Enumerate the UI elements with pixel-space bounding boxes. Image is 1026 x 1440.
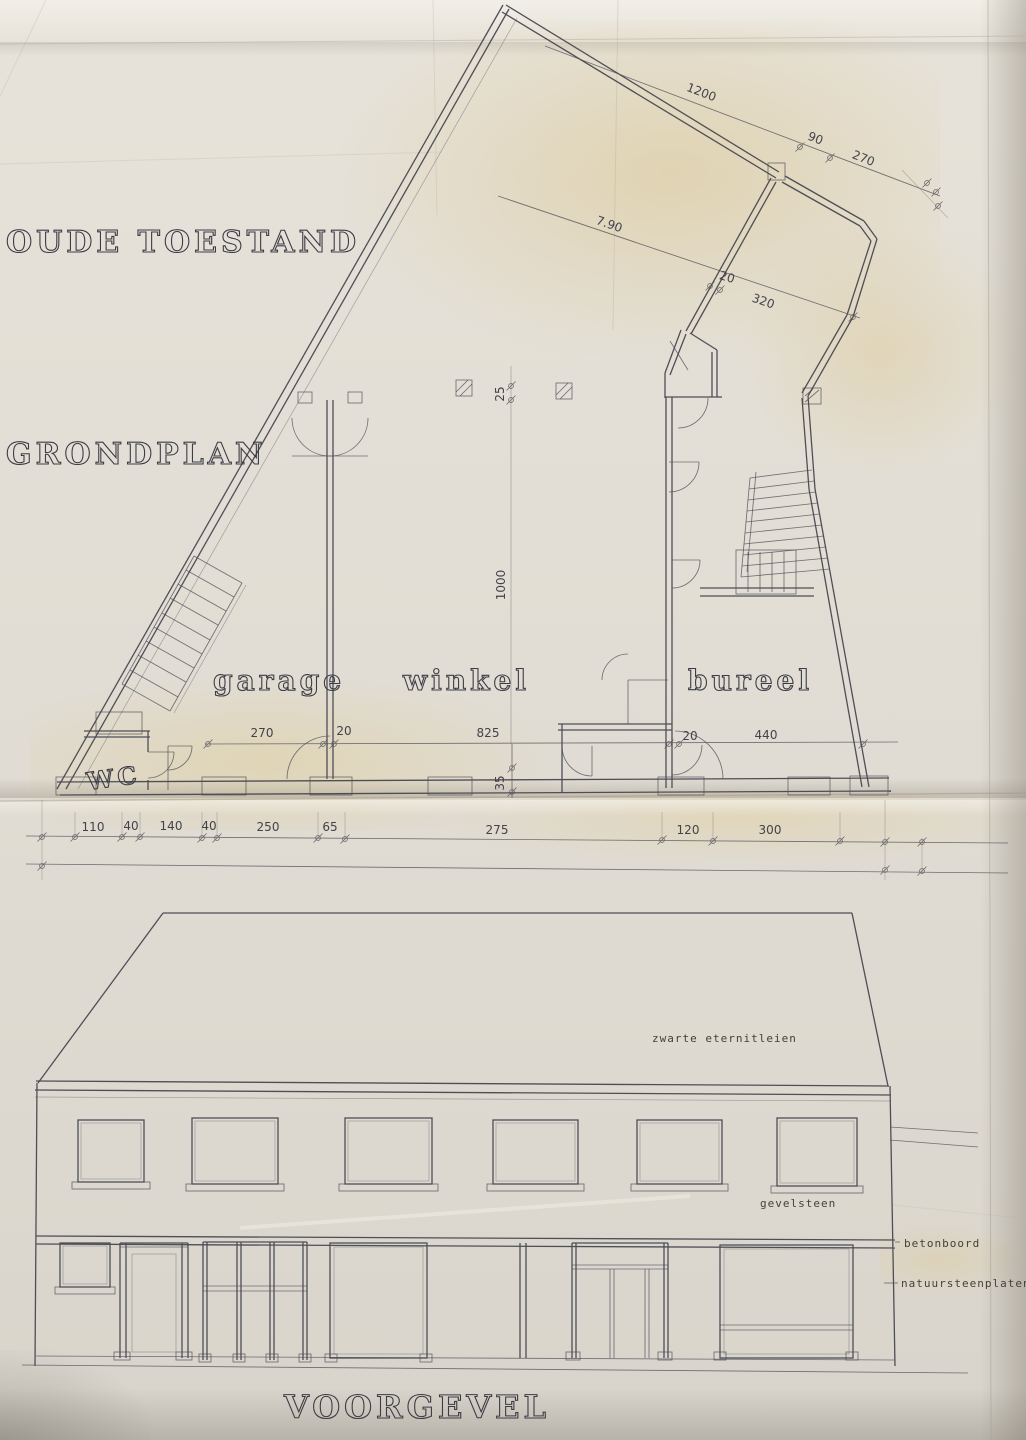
dim-bottom-40b: 40 bbox=[201, 819, 216, 833]
dim-20-int-b: 20 bbox=[682, 729, 697, 743]
room-label-bureel: bureel bbox=[688, 664, 813, 697]
dim-bottom-65: 65 bbox=[322, 820, 337, 834]
facade-anno-roof: zwarte eternitleien bbox=[652, 1032, 797, 1045]
facade-anno-wall: gevelsteen bbox=[760, 1197, 836, 1210]
dim-270-top: 270 bbox=[850, 148, 876, 170]
plan-winkel-partition bbox=[558, 654, 672, 792]
paper-creases bbox=[0, 0, 1026, 1440]
dim-bottom-110: 110 bbox=[82, 820, 105, 834]
facade-outline bbox=[22, 913, 978, 1373]
dim-320: 320 bbox=[750, 291, 776, 312]
plan-bureel-wall-and-bay bbox=[665, 330, 723, 788]
room-label-wc: WC bbox=[84, 760, 143, 796]
dim-bottom-300: 300 bbox=[759, 823, 782, 837]
facade-ground-floor bbox=[55, 1242, 858, 1362]
room-label-winkel: winkel bbox=[402, 664, 530, 697]
dim-bottom-250: 250 bbox=[257, 820, 280, 834]
title-oude-toestand: OUDE TOESTAND bbox=[6, 225, 360, 260]
room-label-garage: garage bbox=[213, 664, 345, 697]
blueprint-sheet: 1200 90 270 7.90 20 320 bbox=[0, 0, 1026, 1440]
title-voorgevel: VOORGEVEL bbox=[283, 1388, 550, 1426]
dim-bottom-275: 275 bbox=[486, 823, 509, 837]
dim-bottom-40a: 40 bbox=[123, 819, 138, 833]
title-grondplan: GRONDPLAN bbox=[6, 437, 266, 472]
dim-825: 825 bbox=[477, 726, 500, 740]
dim-20-int-a: 20 bbox=[336, 724, 351, 738]
dim-90: 90 bbox=[806, 129, 825, 148]
plan-bureel-stair bbox=[700, 470, 830, 596]
dim-35: 35 bbox=[493, 775, 507, 790]
plan-dim-top-line bbox=[545, 46, 948, 218]
dim-25: 25 bbox=[493, 386, 507, 401]
dim-bottom-140: 140 bbox=[160, 819, 183, 833]
dim-440: 440 bbox=[755, 728, 778, 742]
dim-790: 7.90 bbox=[594, 213, 624, 235]
plan-dim-interior-line bbox=[204, 382, 899, 799]
plan-divider-garage-winkel bbox=[287, 392, 368, 779]
facade-upper-windows bbox=[72, 1118, 863, 1193]
plan-dim-bottom-rows bbox=[26, 800, 1008, 880]
dim-20-diag: 20 bbox=[718, 268, 737, 286]
dim-1000: 1000 bbox=[494, 570, 508, 601]
plan-dim-diagonal-line bbox=[498, 196, 860, 322]
dim-270-int: 270 bbox=[251, 726, 274, 740]
facade-anno-band: betonboord bbox=[904, 1237, 980, 1250]
facade-elevation: zwarte eternitleien gevelsteen betonboor… bbox=[22, 913, 1026, 1373]
dim-bottom-120: 120 bbox=[677, 823, 700, 837]
facade-anno-plinth: natuursteenplaten bbox=[901, 1277, 1026, 1290]
drawing-canvas: 1200 90 270 7.90 20 320 bbox=[0, 0, 1026, 1440]
